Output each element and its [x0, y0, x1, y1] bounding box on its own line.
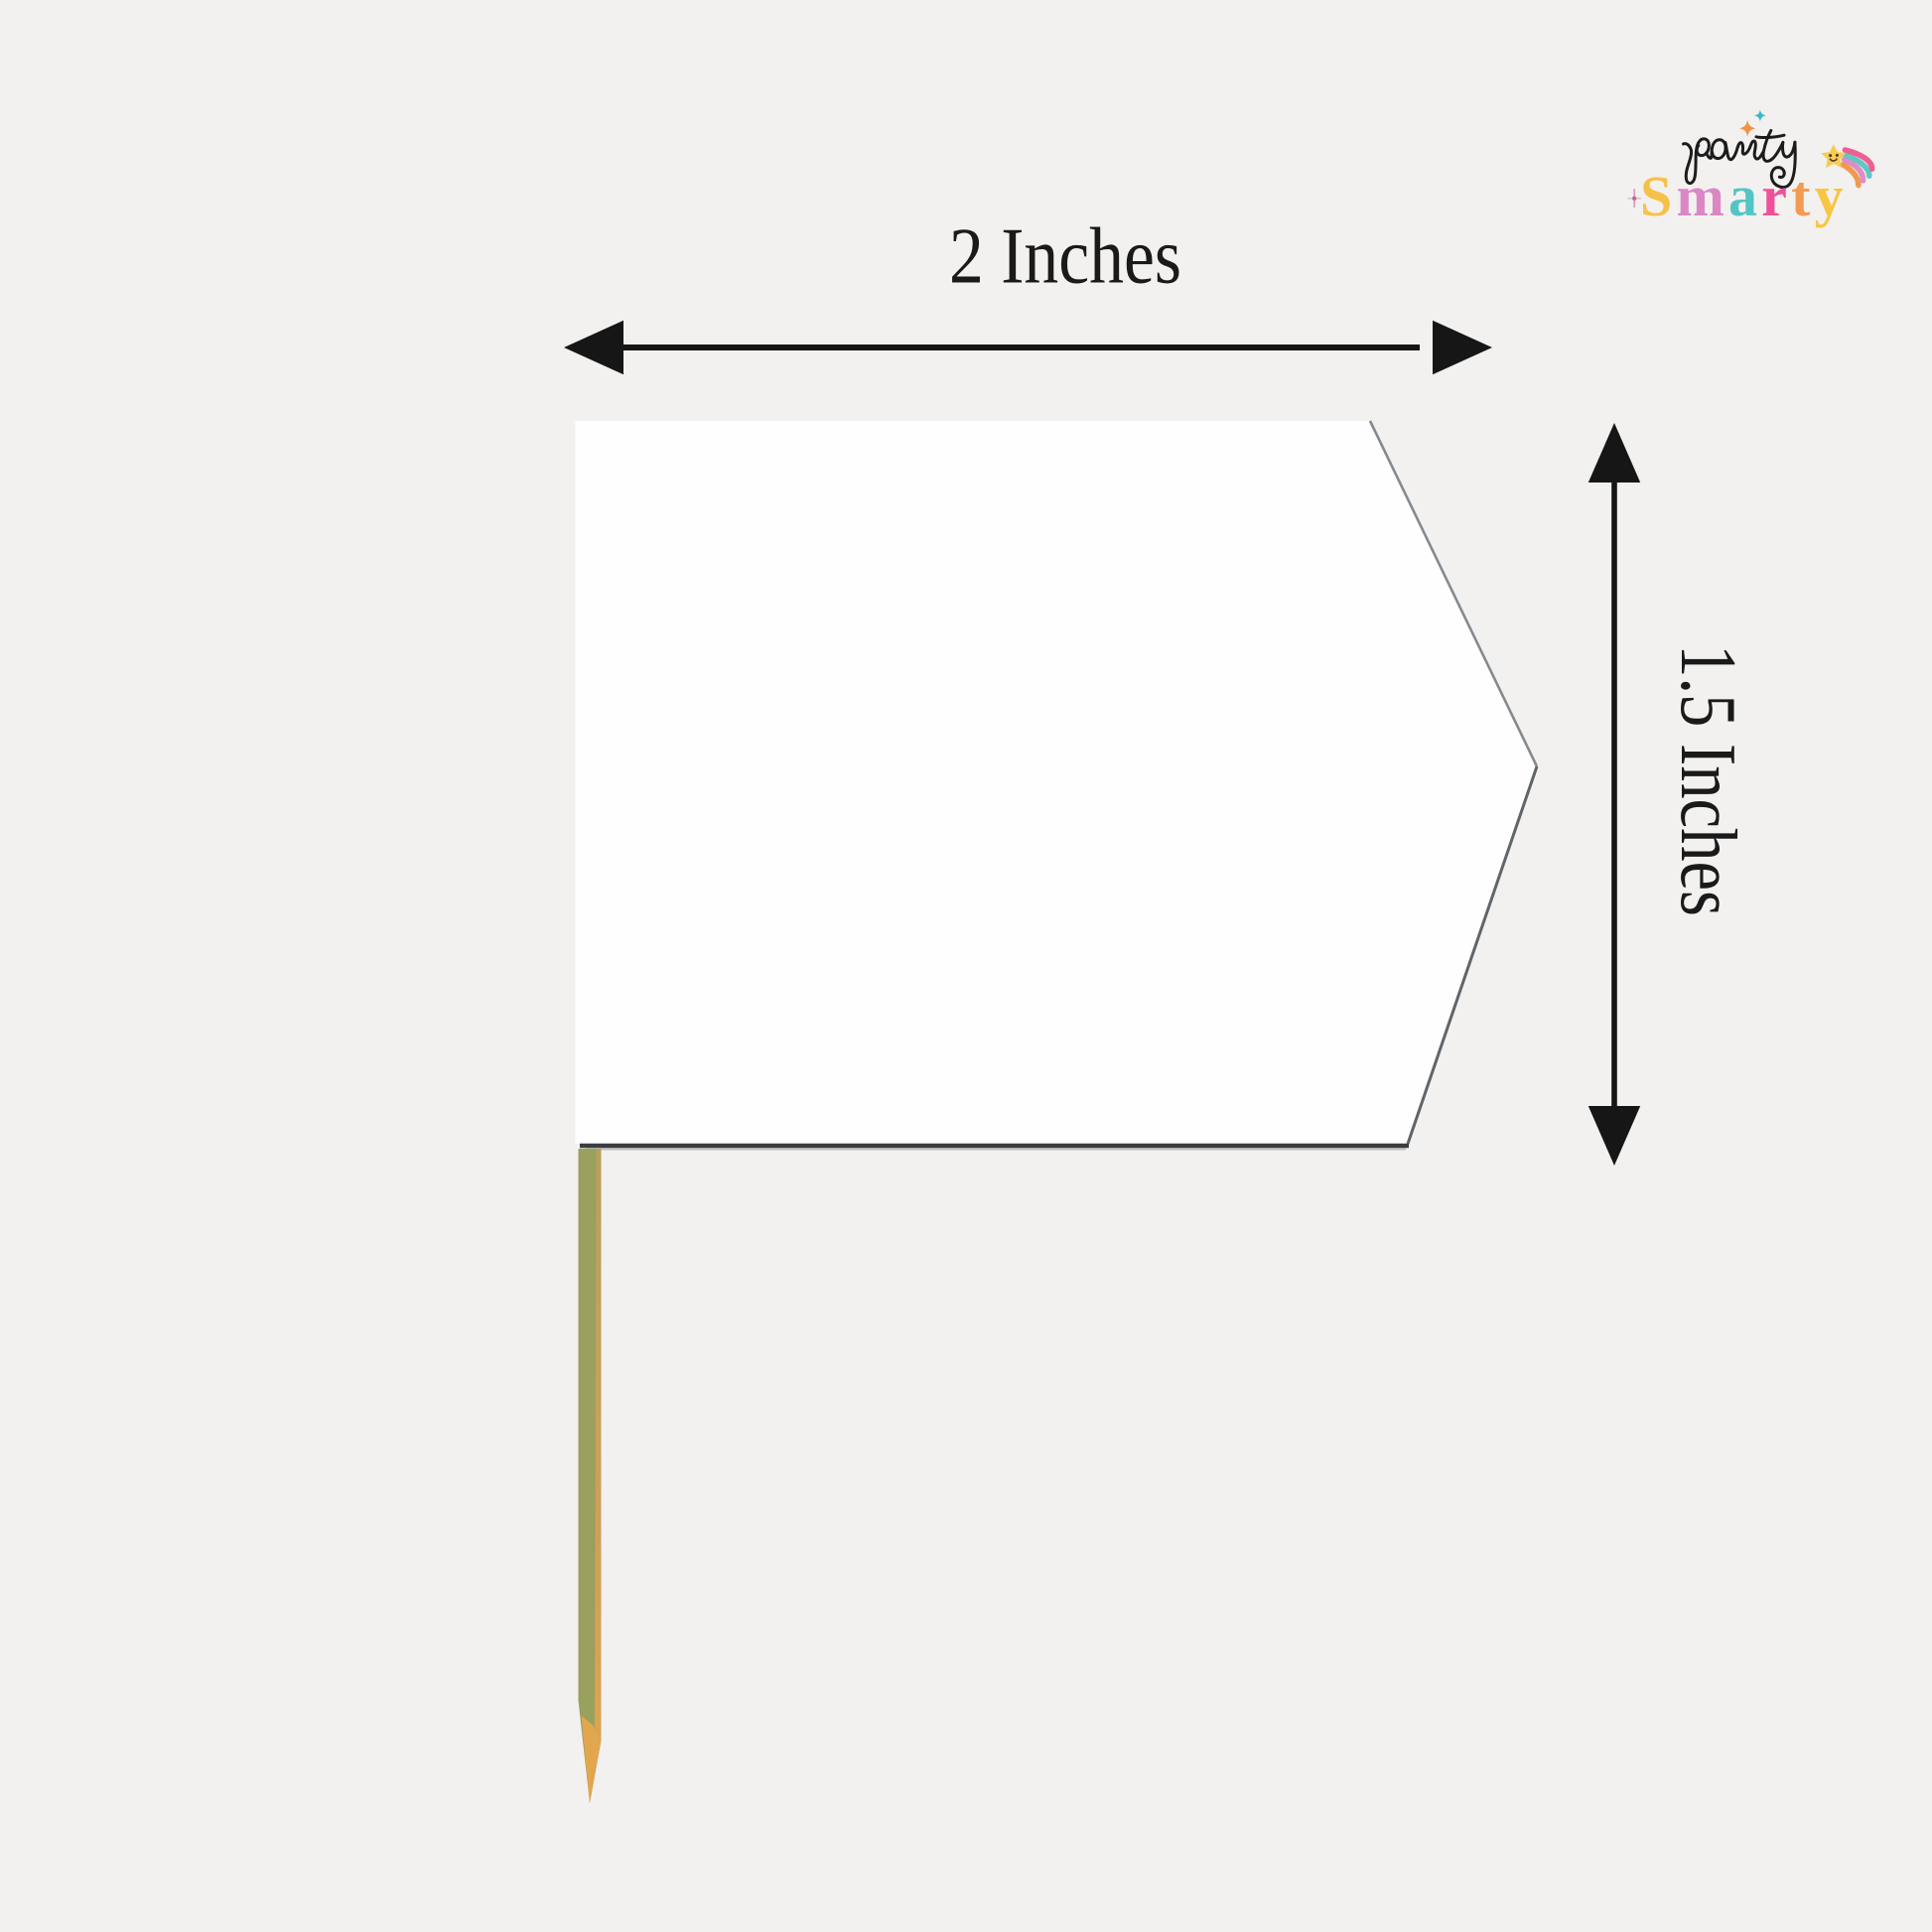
- svg-text:Smarty: Smarty: [1640, 164, 1848, 228]
- svg-text:2 Inches: 2 Inches: [949, 211, 1181, 301]
- svg-text:1.5 Inches: 1.5 Inches: [1664, 644, 1751, 916]
